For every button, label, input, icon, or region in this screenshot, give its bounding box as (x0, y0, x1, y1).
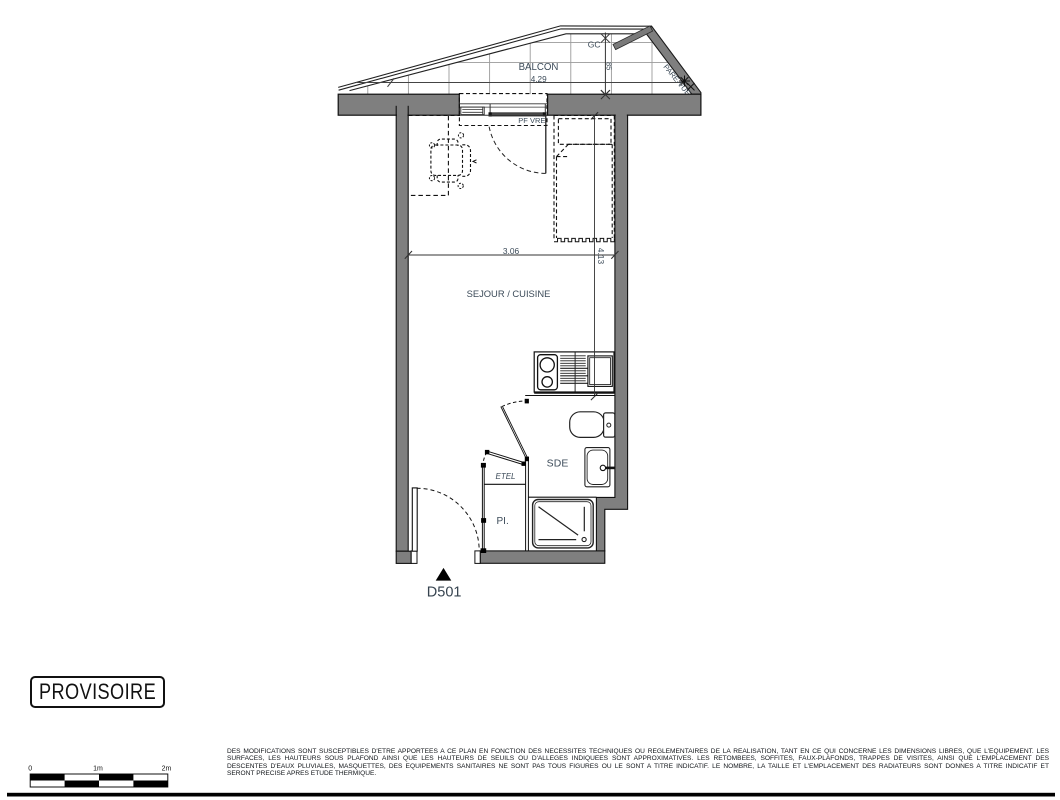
svg-text:85: 85 (605, 62, 614, 70)
svg-text:PF VRE: PF VRE (518, 116, 545, 125)
svg-text:0: 0 (28, 766, 32, 773)
svg-text:SEJOUR / CUISINE: SEJOUR / CUISINE (467, 288, 551, 299)
svg-text:1m: 1m (93, 766, 103, 773)
svg-text:4.13: 4.13 (596, 248, 606, 265)
svg-text:BALCON: BALCON (519, 62, 559, 73)
svg-text:GC: GC (588, 39, 601, 49)
svg-text:ETEL: ETEL (496, 472, 516, 481)
svg-text:2m: 2m (162, 766, 172, 773)
svg-text:SDE: SDE (547, 458, 569, 469)
svg-text:D501: D501 (427, 584, 462, 600)
svg-text:PI.: PI. (497, 516, 509, 527)
svg-text:4.29: 4.29 (531, 75, 547, 84)
svg-text:3.06: 3.06 (503, 246, 520, 256)
